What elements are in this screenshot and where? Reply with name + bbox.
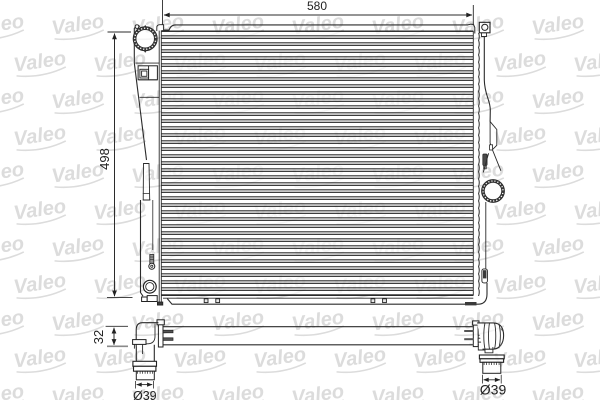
svg-text:580: 580 — [307, 0, 327, 13]
svg-text:32: 32 — [91, 330, 106, 344]
